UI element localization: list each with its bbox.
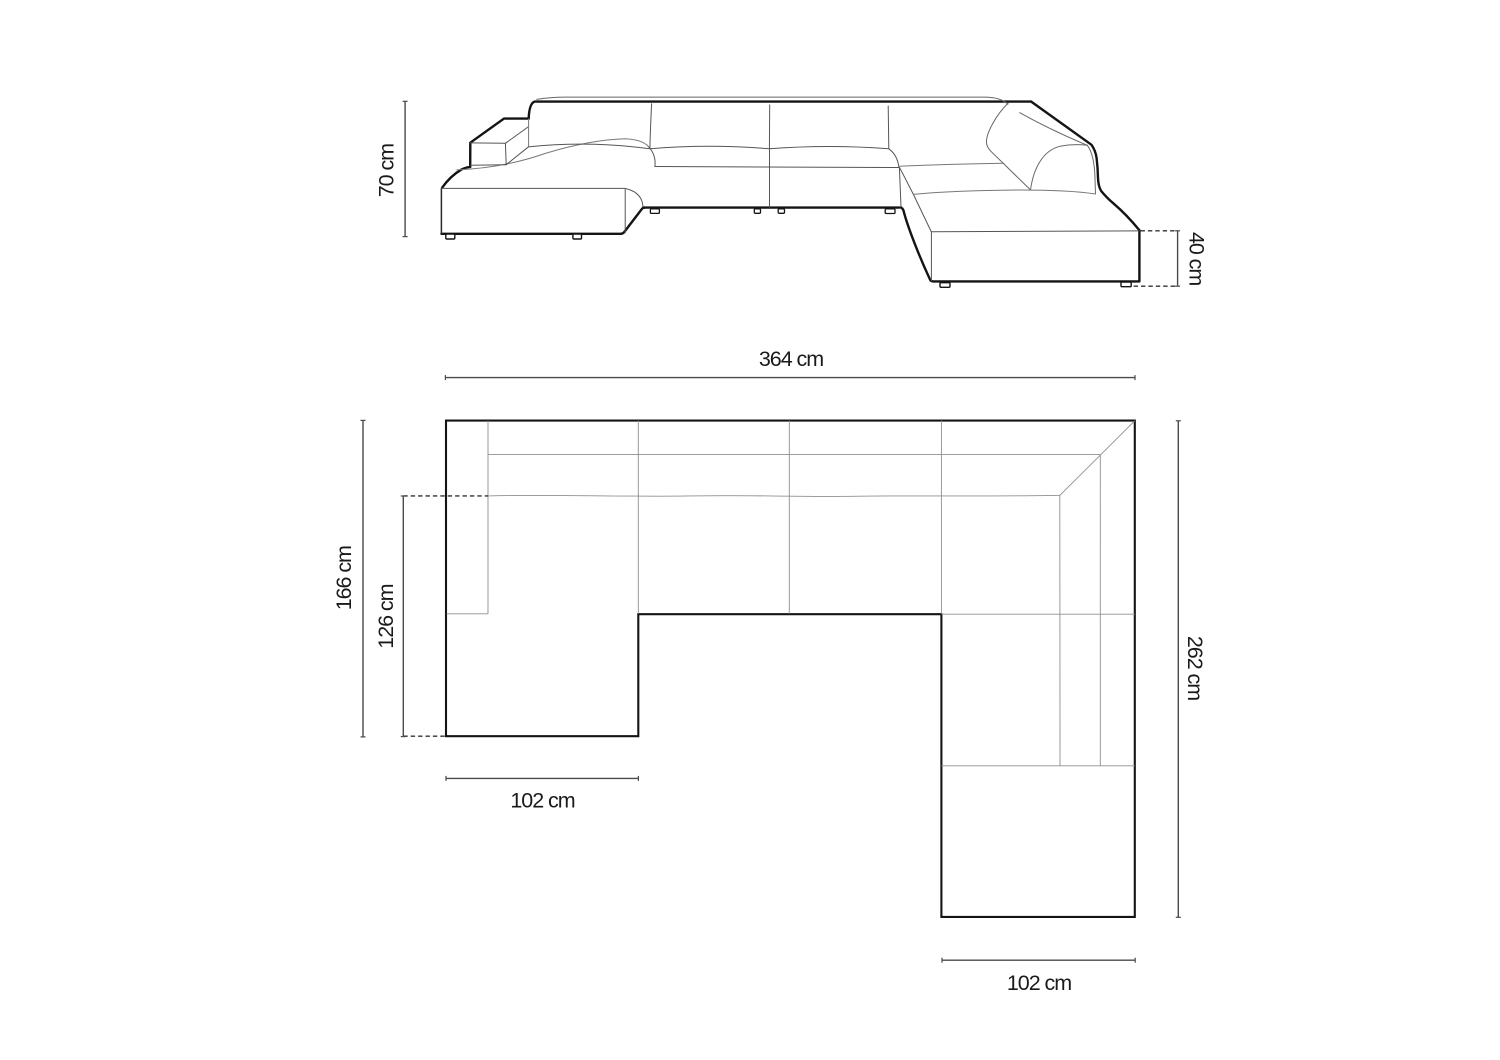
- svg-text:166 cm: 166 cm: [332, 546, 356, 610]
- svg-text:262 cm: 262 cm: [1183, 636, 1207, 700]
- svg-text:364 cm: 364 cm: [759, 347, 823, 371]
- svg-text:70 cm: 70 cm: [375, 144, 399, 197]
- svg-text:102 cm: 102 cm: [510, 789, 574, 813]
- svg-text:40 cm: 40 cm: [1185, 232, 1209, 285]
- svg-text:102 cm: 102 cm: [1007, 971, 1071, 995]
- svg-text:126 cm: 126 cm: [374, 584, 398, 648]
